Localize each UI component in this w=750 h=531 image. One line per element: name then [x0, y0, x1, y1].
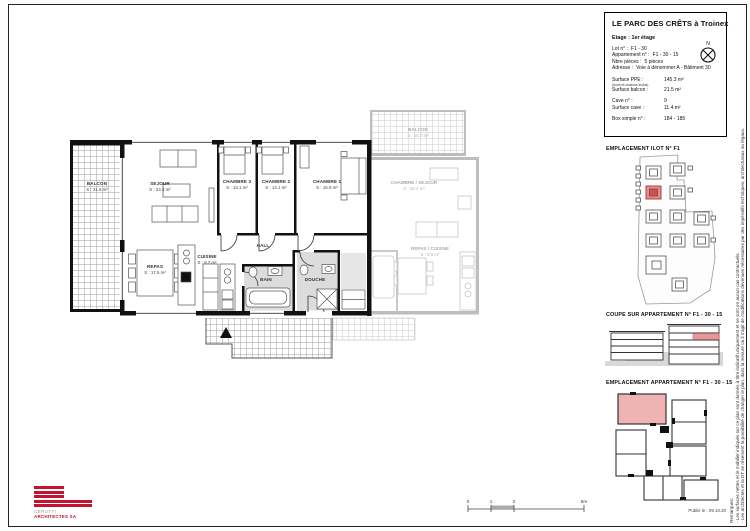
surface-label: Surface PPE :	[612, 77, 643, 83]
neighbor-room-area: S : 10.0 m²	[407, 133, 429, 138]
entry-floor	[341, 253, 366, 289]
logo-bar	[34, 486, 64, 489]
site-building-highlighted	[646, 186, 661, 199]
section-drawing	[605, 320, 725, 372]
remarks-note: Remarques: - Les surfaces nettes et le m…	[729, 6, 747, 523]
room-area: S : 13.1 m²	[265, 185, 287, 190]
site-plan	[612, 154, 722, 306]
neighbor-room-label: CHAMBRE / SEJOUR	[391, 180, 438, 185]
info-row: Adresse :Voie à dénommer A - Bâtiment 30	[612, 65, 720, 71]
room-label: CHAMBRE 3	[223, 179, 252, 184]
surface-label: Box simple n° :	[612, 116, 664, 122]
neighbor-room-label: BALCON	[408, 127, 428, 132]
scale-bar: 0 1 2 5m	[467, 499, 588, 512]
surface-row: Surface balcon :21.5 m²	[612, 87, 720, 93]
room-label: DOUCHE	[305, 277, 326, 282]
neighbor-room-area: S : 28.4 m²	[403, 186, 425, 191]
highlighted-floor	[693, 334, 719, 340]
logo-bar	[34, 500, 92, 503]
surface-label: Surface cave :	[612, 105, 664, 111]
logo-bar	[34, 495, 64, 498]
scale-tick: 5m	[581, 499, 588, 504]
svg-text:N: N	[706, 41, 710, 47]
building-section-left	[609, 332, 665, 361]
logo-bar	[34, 504, 92, 507]
surface-value: 11.4 m²	[664, 105, 681, 111]
scale-tick: 1	[490, 499, 493, 504]
room-label: CHAMBRE 1	[313, 179, 342, 184]
logo-bar	[34, 491, 64, 494]
floor-plan: BALCON S : 10.0 m² CHAMBRE / SEJOUR S : …	[0, 0, 600, 531]
surface-value: 184 - 185	[664, 116, 685, 122]
remarks-line: - Les architectes et la DT se réservent …	[740, 6, 746, 523]
room-area: S : 16.9 m²	[316, 185, 338, 190]
architect-logo: CERUTTI ARCHITECTES SA	[34, 486, 114, 519]
room-area: S : 21.5 m²	[86, 187, 108, 192]
scale-tick: 0	[467, 499, 470, 504]
key-plan-highlighted-apartment	[618, 394, 666, 424]
neighbor-room-area: S : 9.9 m²	[420, 252, 440, 257]
door-openings	[221, 233, 314, 237]
key-plan	[610, 390, 728, 502]
neighbor-room-label: REPAS / CUISINE	[411, 246, 449, 251]
room-label: BAIN	[260, 277, 272, 282]
balcony	[72, 145, 121, 310]
title-block: LE PARC DES CRÊTS à Troinex Etage : 1er …	[604, 12, 727, 137]
room-label: SEJOUR	[150, 181, 170, 186]
info-value: Voie à dénommer A - Bâtiment 30	[636, 65, 711, 71]
coupe-heading: COUPE SUR APPARTEMENT N° F1 - 30 - 15	[606, 312, 722, 318]
room-area: S : 23.3 m²	[149, 187, 171, 192]
room-label: REPAS	[147, 264, 163, 269]
room-label: CUISINE	[197, 254, 216, 259]
entrance-porch	[206, 318, 332, 358]
surface-value: 145.3 m²	[664, 77, 684, 87]
room-label: HALL	[257, 243, 270, 248]
room-label: CHAMBRE 2	[262, 179, 291, 184]
room-label: BALCON	[87, 181, 108, 186]
logo-subtitle: ARCHITECTES SA	[34, 514, 114, 519]
surface-value: 21.5 m²	[664, 87, 681, 93]
surface-row: Surface PPE :(murs et cloisons inclus) 1…	[612, 77, 720, 87]
published-date: Publié le : 09.10.20	[604, 508, 726, 513]
building-section-right	[667, 325, 721, 365]
ilot-heading: EMPLACEMENT ILOT N° F1	[606, 146, 680, 152]
info-label: Adresse :	[612, 65, 633, 71]
surface-row: Surface cave :11.4 m²	[612, 105, 720, 111]
surface-row: Box simple n° :184 - 185	[612, 116, 720, 122]
surface-label: Surface balcon :	[612, 87, 664, 93]
room-area: S : 9.7 m²	[197, 260, 217, 265]
room-area: S : 13.1 m²	[226, 185, 248, 190]
apartment-heading: EMPLACEMENT APPARTEMENT N° F1 - 30 - 15	[606, 380, 732, 386]
sheet-title: LE PARC DES CRÊTS à Troinex	[612, 19, 720, 28]
room-area: S : 17.5 m²	[144, 270, 166, 275]
scale-tick: 2	[513, 499, 516, 504]
north-icon: N	[698, 39, 718, 65]
